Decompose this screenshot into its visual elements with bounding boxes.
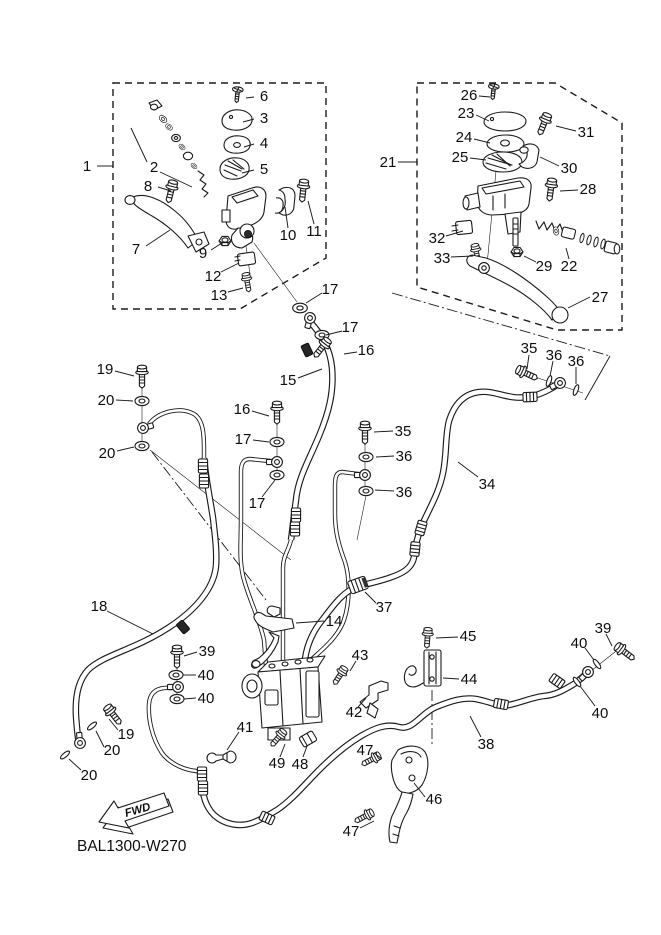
callout-48: 48: [292, 756, 309, 773]
callout-9: 9: [199, 245, 207, 262]
crimp-hose38-a: [197, 767, 206, 781]
callout-36-c: 36: [546, 347, 563, 364]
banjo-pipe-middle: [267, 457, 283, 468]
diagram-canvas: 1 2 3 4 5 6 7 8 9 10 11 12 13 17 21 22 2…: [0, 0, 661, 935]
callout-8: 8: [144, 178, 152, 195]
brake-lever-27: [467, 255, 568, 323]
callout-5: 5: [260, 161, 268, 178]
diaphragm-5: [220, 158, 249, 179]
callout-22: 22: [561, 258, 578, 275]
crimp-hose15-b: [290, 522, 299, 536]
brake-pipe-right: [312, 472, 358, 659]
cap-plate-4: [224, 136, 250, 153]
callout-40-a: 40: [198, 667, 215, 684]
crimp-hose18-b: [199, 474, 208, 488]
front-master-cylinder-assembly: [125, 86, 310, 292]
callout-41: 41: [237, 719, 254, 736]
crimp-hose34-a: [415, 520, 428, 536]
callout-19-b: 19: [118, 726, 135, 743]
callout-labels: 1 2 3 4 5 6 7 8 9 10 11 12 13 17 21 22 2…: [81, 87, 612, 840]
callout-17-b: 17: [342, 319, 359, 336]
callout-45: 45: [460, 628, 477, 645]
callout-43: 43: [352, 647, 369, 664]
crimp-hose34-b: [410, 542, 421, 557]
washer-40-a: [169, 670, 183, 679]
callout-38: 38: [478, 736, 495, 753]
cap-plate-24: [487, 135, 524, 152]
brake-pipe-middle: [241, 459, 271, 666]
washer-17-a: [293, 303, 308, 313]
callout-36-a: 36: [396, 448, 413, 465]
fwd-direction-arrow: FWD: [99, 793, 173, 834]
washer-17-d: [270, 470, 284, 479]
crimp-hose15-top: [301, 343, 313, 357]
master-cylinder-body-rear: [463, 178, 531, 246]
piston-kit-2: [149, 100, 208, 197]
crimp-hose15-a: [291, 508, 300, 522]
union-bolt-19a: [136, 365, 148, 388]
callout-26: 26: [461, 87, 478, 104]
callout-42: 42: [346, 704, 363, 721]
banjo-hose38-left: [168, 682, 184, 693]
wire-clamp-48: [299, 730, 317, 747]
crimp-hose34-top: [523, 392, 537, 402]
brake-switch-32: [452, 220, 473, 235]
callout-30: 30: [561, 160, 578, 177]
callout-14: 14: [326, 613, 343, 630]
reservoir-cap-3: [222, 110, 252, 130]
callout-19-a: 19: [97, 361, 114, 378]
callout-21: 21: [380, 154, 397, 171]
callout-24: 24: [456, 129, 473, 146]
washer-20-b: [135, 441, 149, 450]
callout-17-d: 17: [249, 495, 266, 512]
bracket-44: [404, 650, 441, 687]
washer-40-b: [170, 694, 184, 703]
screw-6: [231, 86, 243, 103]
callout-15: 15: [280, 372, 297, 389]
callout-20-b: 20: [99, 445, 116, 462]
callout-36-d: 36: [568, 353, 585, 370]
washer-17-c: [270, 437, 284, 446]
adjuster-bolt-8: [162, 179, 180, 204]
callout-34: 34: [479, 476, 496, 493]
piston-kit-22: [536, 221, 620, 254]
callout-20-c: 20: [104, 742, 121, 759]
callout-35-a: 35: [395, 423, 412, 440]
callout-11: 11: [306, 223, 322, 240]
drawing-code: BAL1300-W270: [77, 838, 187, 855]
parts-diagram-page: 1 2 3 4 5 6 7 8 9 10 11 12 13 17 21 22 2…: [0, 0, 661, 935]
washer-36-a: [359, 452, 373, 461]
abs-bracket-14: [252, 606, 294, 668]
bolt-28: [543, 177, 558, 202]
crimp-hose18-a: [198, 459, 207, 473]
washer-36-b: [359, 486, 373, 495]
callout-29: 29: [536, 258, 553, 275]
holder-30: [519, 144, 539, 168]
callout-7: 7: [132, 241, 140, 258]
callout-17-a: 17: [322, 281, 339, 298]
washer-20-d: [59, 750, 70, 760]
callout-20-e: 20: [81, 767, 98, 784]
holder-bolt-11: [296, 179, 311, 203]
callout-47-a: 47: [357, 742, 374, 759]
callout-40-b: 40: [198, 690, 215, 707]
crimp-hose38-e: [549, 673, 566, 689]
switch-screw-13: [240, 272, 254, 293]
rear-master-cylinder-assembly: [452, 83, 620, 323]
brake-pipe-front-left: [149, 410, 204, 458]
union-bolt-39b: [612, 640, 638, 664]
bracket-46: [389, 746, 428, 843]
callout-25: 25: [452, 149, 469, 166]
callout-4: 4: [260, 135, 268, 152]
callout-40-c: 40: [571, 635, 588, 652]
callout-17-c: 17: [235, 431, 252, 448]
screw-26: [487, 83, 499, 100]
callout-39-b: 39: [595, 620, 612, 637]
diaphragm-25: [483, 152, 522, 172]
union-bolt-16b: [271, 401, 283, 424]
callout-10: 10: [280, 227, 297, 244]
callout-16-b: 16: [234, 401, 251, 418]
callout-36-b: 36: [396, 484, 413, 501]
callout-32: 32: [429, 230, 446, 247]
callout-37: 37: [376, 599, 393, 616]
bolt-43: [329, 664, 350, 687]
callout-18: 18: [91, 598, 108, 615]
crimp-hose38-b: [198, 781, 207, 795]
callout-47-b: 47: [343, 823, 360, 840]
reservoir-cap-23: [484, 112, 526, 131]
union-bolt-39a: [171, 645, 183, 668]
callout-28: 28: [580, 181, 597, 198]
callout-20-a: 20: [98, 392, 115, 409]
hose-clamp-41: [207, 751, 236, 763]
banjo-pipe-right: [355, 470, 371, 481]
callout-40-d: 40: [592, 705, 609, 722]
bolt-45: [421, 627, 434, 648]
callout-16-a: 16: [358, 342, 375, 359]
callout-49: 49: [269, 755, 286, 772]
callout-33: 33: [434, 250, 451, 267]
union-bolt-35b: [514, 363, 540, 384]
washer-20-c: [86, 721, 97, 731]
callout-1: 1: [83, 158, 91, 175]
washer-36-d: [572, 384, 580, 396]
callout-35-b: 35: [521, 340, 538, 357]
bolt-31: [534, 111, 554, 137]
callout-2: 2: [150, 159, 158, 176]
callout-3: 3: [260, 110, 268, 127]
washer-20-a: [135, 396, 149, 405]
callout-12: 12: [205, 268, 222, 285]
lever-holder-10: [275, 187, 295, 215]
callout-13: 13: [211, 287, 228, 304]
callout-6: 6: [260, 88, 268, 105]
callout-31: 31: [578, 124, 595, 141]
union-bolt-35a: [359, 421, 371, 444]
hose-clamp-37: [347, 576, 368, 594]
callout-23: 23: [458, 105, 475, 122]
callout-39-a: 39: [199, 643, 216, 660]
callout-46: 46: [426, 791, 443, 808]
callout-27: 27: [592, 289, 609, 306]
crimp-hose38-d: [493, 698, 508, 709]
nut-29: [511, 247, 523, 256]
callout-44: 44: [461, 671, 478, 688]
